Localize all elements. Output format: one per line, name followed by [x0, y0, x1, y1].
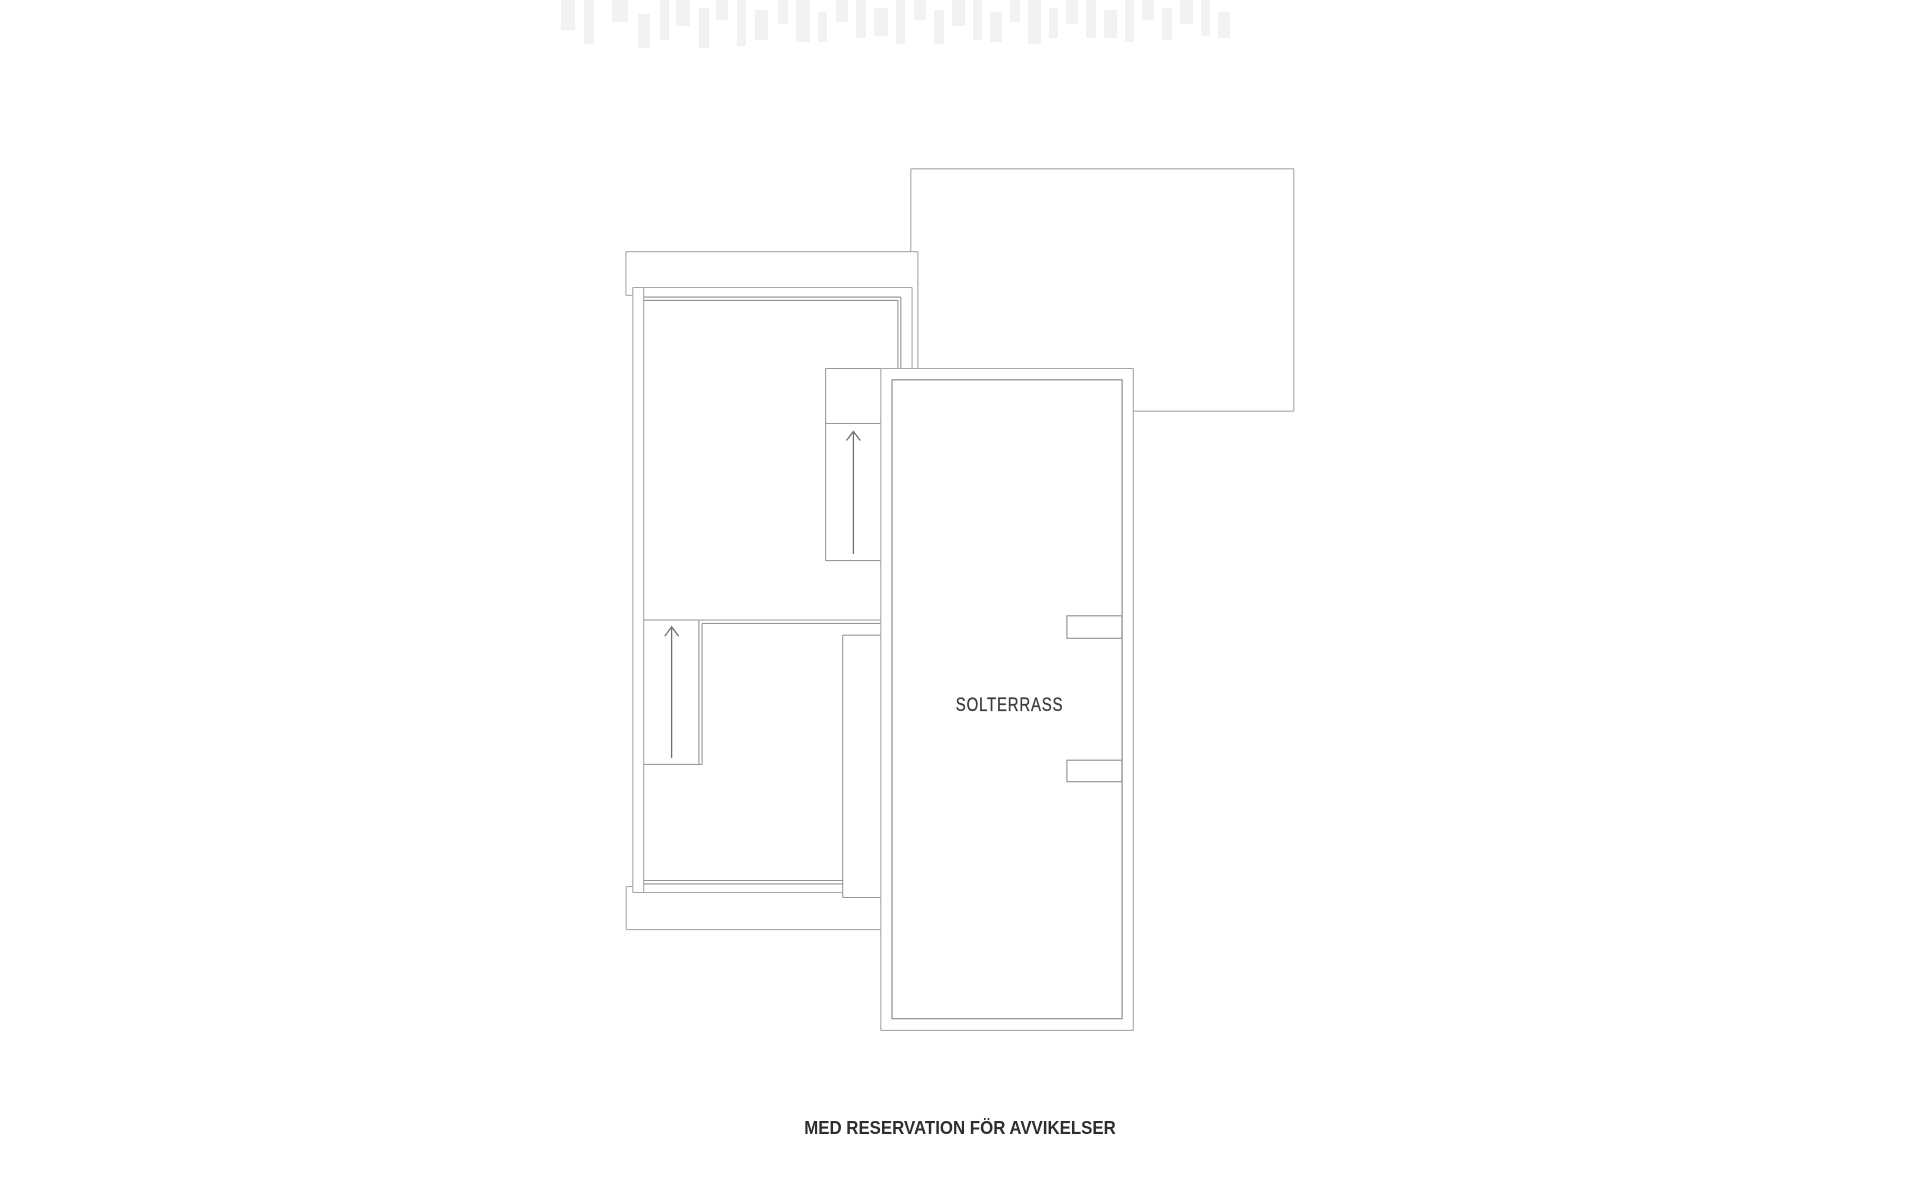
svg-text:MED RESERVATION FÖR AVVIKELSER: MED RESERVATION FÖR AVVIKELSER [804, 1117, 1116, 1138]
svg-text:SOLTERRASS: SOLTERRASS [956, 695, 1064, 716]
